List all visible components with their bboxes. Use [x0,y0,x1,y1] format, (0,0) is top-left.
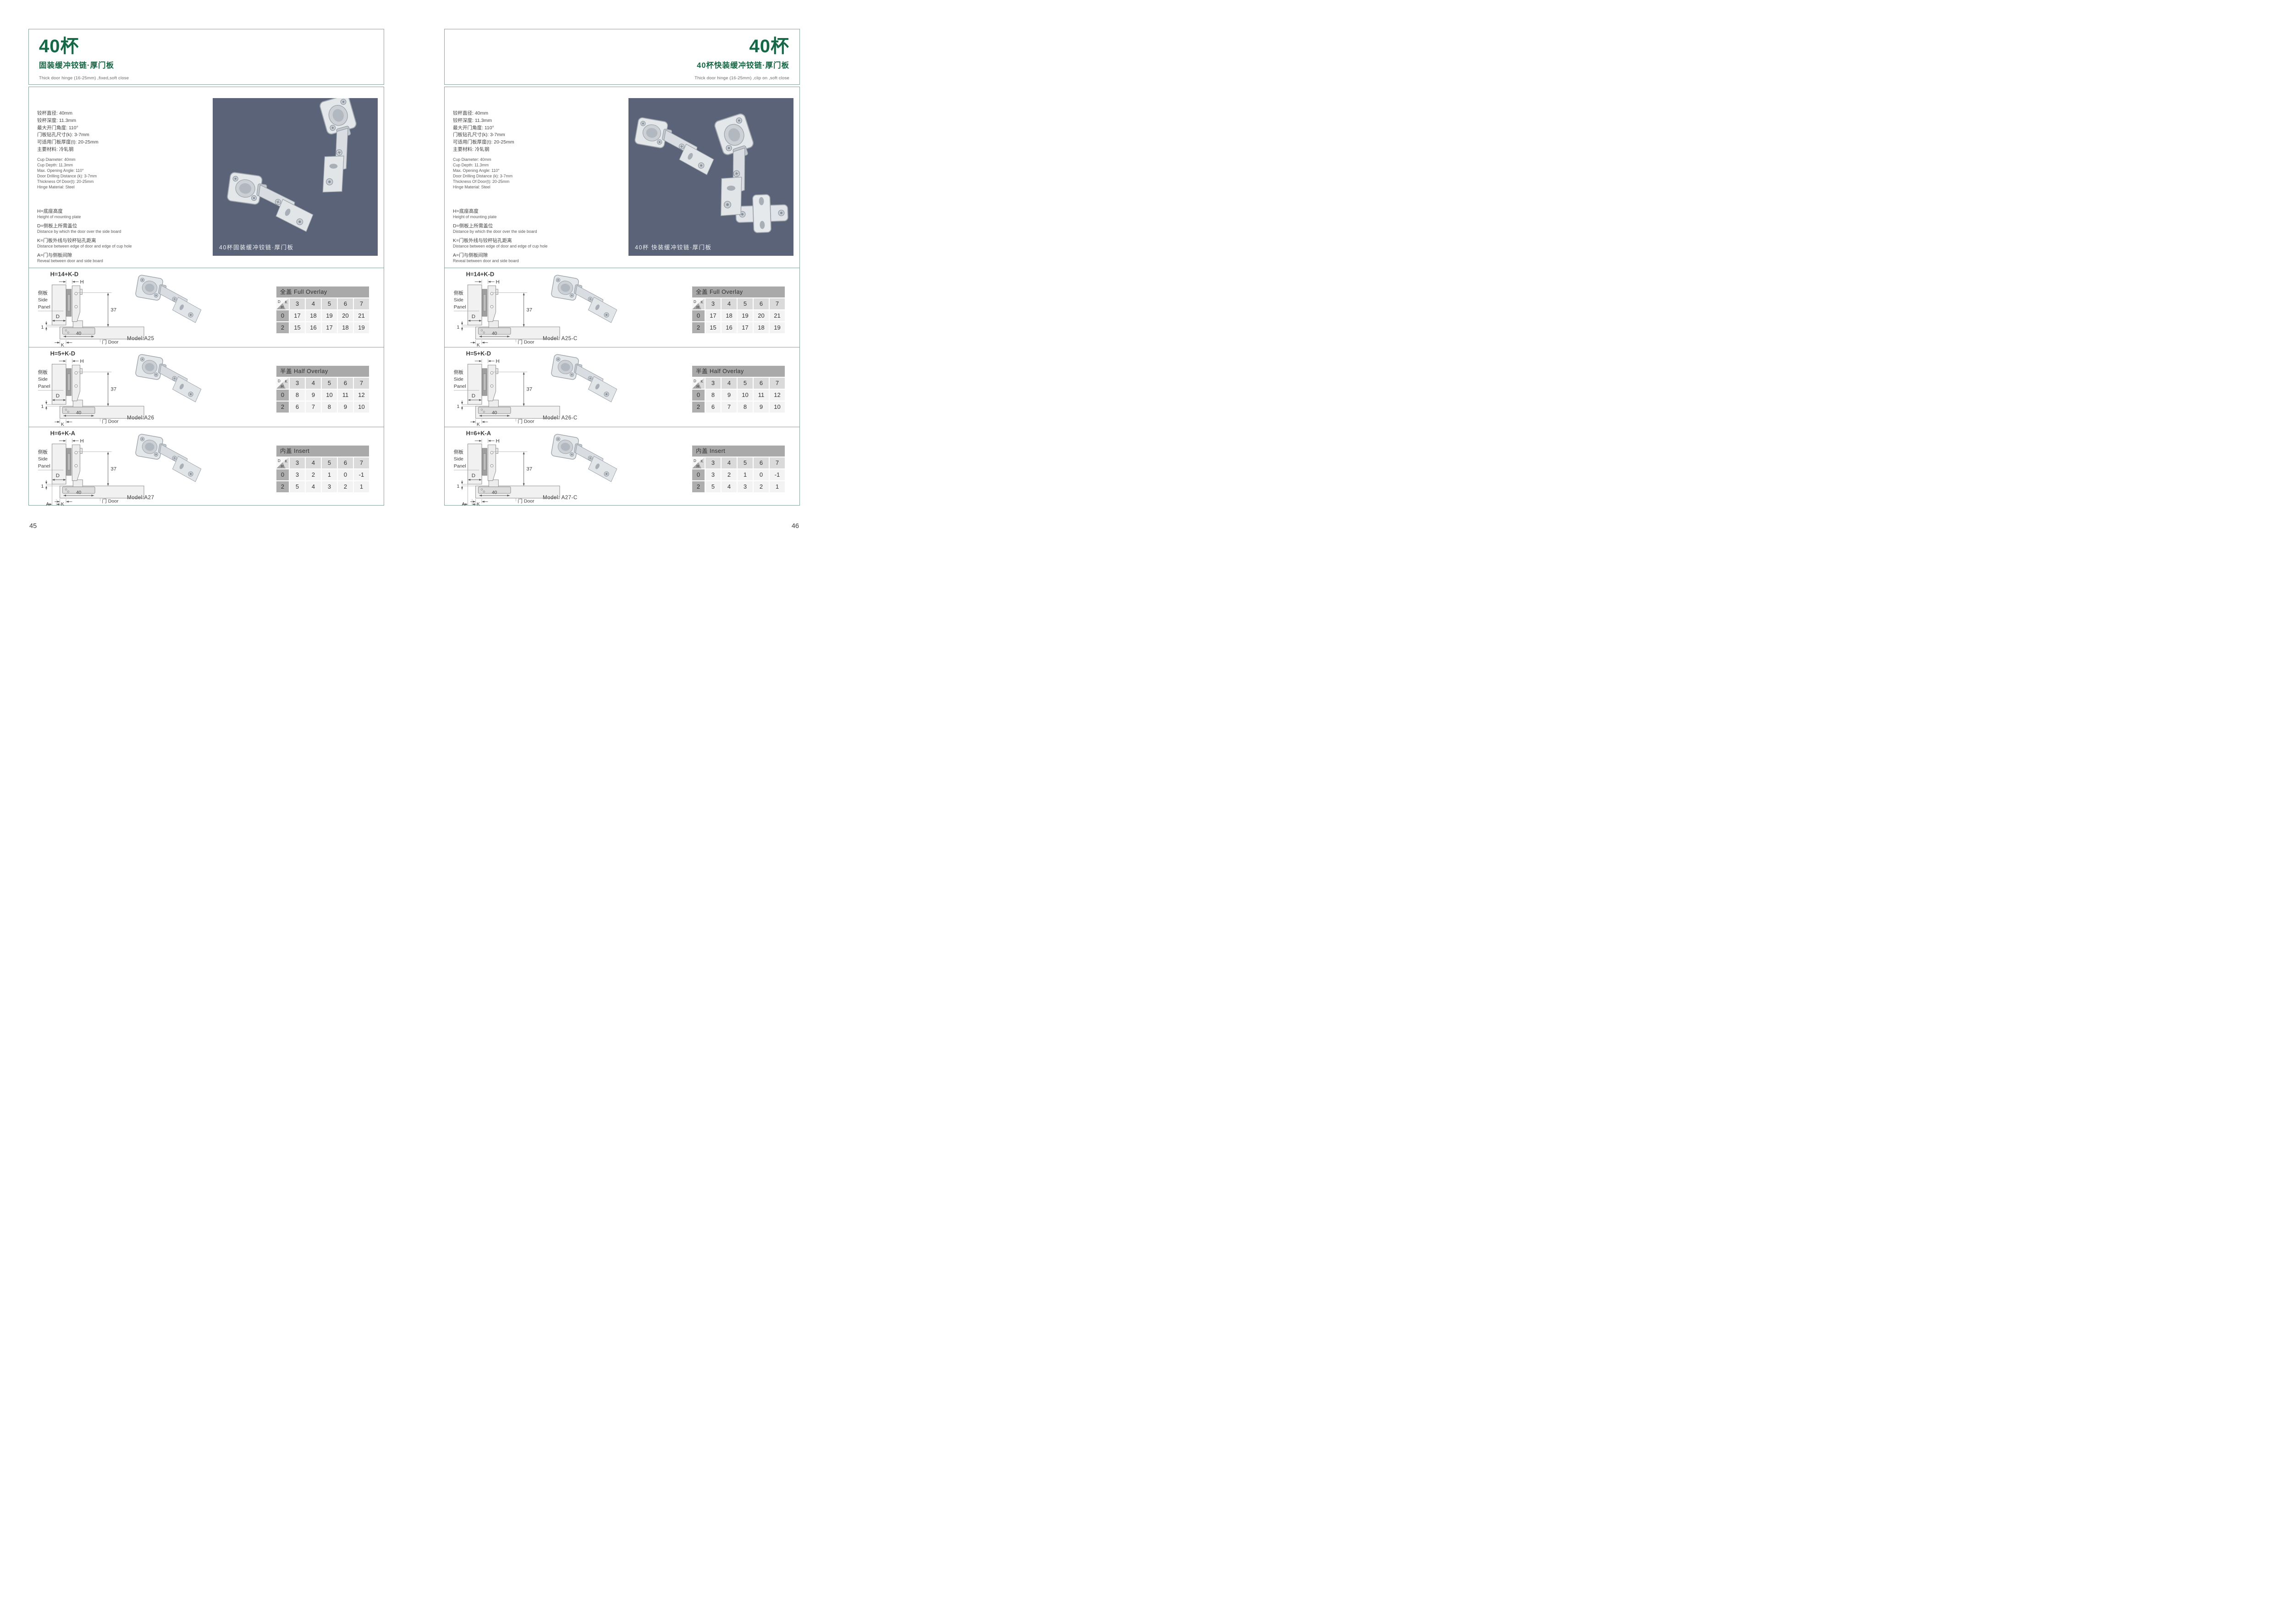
table-row-header: 2 [692,481,705,492]
table-cell: 17 [290,310,305,321]
corner-letter-h: H [281,464,284,468]
table-cell: 17 [705,310,721,321]
table-title: 内盖 Insert [692,446,785,457]
product-image [132,429,208,494]
table-row-header: 0 [276,469,289,480]
table-col-header: 5 [322,457,337,468]
table-col-header: 3 [705,298,721,309]
corner-diagonal: D K H [276,457,289,468]
corner-diagonal: D K H [692,378,705,389]
dim-label-h: H [496,359,500,364]
table-cell: 18 [754,322,769,333]
dim-label-1: 1 [41,484,44,489]
hinge-illustration [547,349,623,411]
corner-letter-h: H [697,464,700,468]
dim-label-1: 1 [457,484,460,489]
dim-label-d: D [56,393,60,399]
door-label: 门 Door [102,498,119,504]
table-col-header: 4 [722,298,737,309]
table-col-header: 7 [354,457,369,468]
product-image [547,349,624,414]
catalog-spread: 40杯 固装缓冲铰链·厚门板 Thick door hinge (16-25mm… [0,0,830,541]
page-subtitle: 固装缓冲铰链·厚门板 [39,59,374,70]
table-cell: 9 [338,402,353,413]
page-number: 45 [29,523,37,530]
table-row-header: 2 [276,322,289,333]
table-col-header: 4 [306,457,321,468]
dim-label-37: 37 [110,467,116,472]
table-cell: 21 [770,310,785,321]
dim-label-h: H [80,439,84,444]
table-cell: -1 [770,469,785,480]
table-cell: 19 [322,310,337,321]
table-col-header: 5 [322,298,337,309]
table-col-header: 6 [754,378,769,389]
dim-label-40: 40 [492,410,497,415]
installation-formula: H=14+K-D [466,270,495,277]
table-cell: 2 [722,469,737,480]
product-section: H=5+K-D H 侧板 Side Panel D 1 40 37 K 门 Do… [445,347,799,427]
table-corner-cell: D K H [692,378,705,389]
table-cell: 19 [770,322,785,333]
table-cell: 3 [322,481,337,492]
page-header: 40杯 固装缓冲铰链·厚门板 Thick door hinge (16-25mm… [28,29,384,85]
dim-label-1: 1 [41,404,44,409]
dim-label-1: 1 [457,325,460,330]
table-row-header: 2 [692,322,705,333]
dim-label-d: D [472,473,475,479]
dim-label-k: K [477,422,480,426]
corner-letter-h: H [281,305,284,309]
table-col-header: 7 [354,378,369,389]
table-cell: 2 [754,481,769,492]
table-col-header: 7 [770,298,785,309]
product-image [547,429,624,494]
corner-letter-k: K [701,459,704,463]
corner-diagonal: D K H [692,457,705,468]
product-sections: H=14+K-D H 侧板 Side Panel D 1 40 37 K 门 D… [445,87,799,505]
table-col-header: 6 [338,457,353,468]
table-cell: 9 [722,390,737,401]
table-col-header: 7 [770,457,785,468]
table-cell: 3 [738,481,753,492]
hinge-illustration [547,270,623,332]
table-cell: 4 [306,481,321,492]
dim-label-h: H [496,439,500,444]
product-image [132,349,208,414]
dim-label-d: D [56,314,60,319]
side-panel-label-en: Panel [38,463,50,469]
table-row-header: 0 [692,469,705,480]
page-number: 46 [792,523,799,530]
table-col-header: 4 [306,378,321,389]
side-panel-label-en: Panel [38,384,50,389]
dim-label-h: H [80,280,84,285]
table-cell: 16 [722,322,737,333]
table-col-header: 5 [738,457,753,468]
side-panel-label-cn: 侧板 [38,369,48,375]
table-col-header: 6 [338,298,353,309]
table-cell: 6 [290,402,305,413]
side-panel-label-cn: 侧板 [454,290,463,296]
product-section: H=14+K-D H 侧板 Side Panel D 1 40 37 K 门 D… [29,268,384,347]
table-grid: D K H 345670171819202121516171819 [276,298,369,333]
table-col-header: 7 [770,378,785,389]
table-cell: 19 [738,310,753,321]
installation-formula: H=5+K-D [50,350,75,357]
corner-letter-k: K [285,300,288,304]
product-image [132,270,208,335]
side-panel-label-en: Side [38,377,48,382]
corner-letter-d: D [278,459,281,463]
table-row-header: 2 [692,402,705,413]
dim-label-a: A [462,501,465,506]
table-cell: 8 [290,390,305,401]
table-cell: 18 [722,310,737,321]
table-row-header: 0 [692,310,705,321]
table-grid: D K H 345670171819202121516171819 [692,298,785,333]
dim-label-37: 37 [526,467,532,472]
table-cell: 15 [290,322,305,333]
table-cell: 4 [722,481,737,492]
table-corner-cell: D K H [276,378,289,389]
table-col-header: 5 [738,378,753,389]
table-cell: 1 [354,481,369,492]
table-cell: 15 [705,322,721,333]
corner-letter-h: H [281,385,284,389]
corner-letter-d: D [278,300,281,304]
table-title: 半盖 Half Overlay [692,366,785,377]
model-label: Model:A25 [127,336,154,341]
page-content: 铰杯直径: 40mm铰杯深度: 11.3mm最大开门角度: 110°门板钻孔尺寸… [28,87,384,506]
table-col-header: 7 [354,298,369,309]
installation-formula: H=14+K-D [50,270,79,277]
dim-label-d: D [472,314,475,319]
corner-letter-k: K [285,459,288,463]
overlay-table: 全盖 Full Overlay D K H 345670171819202121… [276,286,369,333]
table-cell: 7 [722,402,737,413]
page-subtitle-en: Thick door hinge (16-25mm) ,fixed,soft c… [39,76,374,81]
table-cell: 1 [770,481,785,492]
table-cell: 1 [738,469,753,480]
dim-label-k: K [61,422,64,426]
dim-label-a: A [46,501,49,506]
table-cell: 16 [306,322,321,333]
model-label: Model:A27 [127,495,154,501]
table-cell: 10 [322,390,337,401]
table-grid: D K H 345670891011122678910 [692,378,785,413]
table-cell: 10 [738,390,753,401]
table-cell: 7 [306,402,321,413]
table-cell: 8 [322,402,337,413]
model-label: Model:A26 [127,415,154,421]
table-col-header: 4 [722,378,737,389]
catalog-page-left: 40杯 固装缓冲铰链·厚门板 Thick door hinge (16-25mm… [28,29,384,506]
overlay-table: 全盖 Full Overlay D K H 345670171819202121… [692,286,785,333]
product-section: H=6+K-A H 侧板 Side Panel D 1 40 37 K 门 Do… [445,427,799,506]
table-cell: 18 [338,322,353,333]
side-panel-label-en: Panel [454,384,466,389]
table-cell: 20 [338,310,353,321]
table-corner-cell: D K H [276,457,289,468]
dim-label-d: D [56,473,60,479]
table-grid: D K H 345670891011122678910 [276,378,369,413]
dim-label-40: 40 [492,490,497,495]
page-subtitle-en: Thick door hinge (16-25mm) ,clip on ,sof… [455,76,789,81]
table-row-header: 0 [276,310,289,321]
table-cell: 12 [354,390,369,401]
overlay-table: 内盖 Insert D K H 3456703210-1254321 [692,446,785,492]
table-col-header: 3 [705,378,721,389]
dim-label-1: 1 [457,404,460,409]
table-grid: D K H 3456703210-1254321 [692,457,785,492]
table-cell: 17 [738,322,753,333]
table-cell: 10 [770,402,785,413]
table-cell: 3 [290,469,305,480]
page-subtitle: 40杯快装缓冲铰链·厚门板 [455,59,789,70]
table-cell: 11 [338,390,353,401]
table-col-header: 3 [705,457,721,468]
table-cell: 6 [705,402,721,413]
side-panel-label-en: Side [38,457,48,462]
table-col-header: 4 [306,298,321,309]
hinge-illustration [132,429,208,491]
side-panel-label-cn: 侧板 [38,290,48,296]
dim-label-1: 1 [41,325,44,330]
hinge-illustration [132,349,208,411]
door-label: 门 Door [102,339,119,345]
table-title: 半盖 Half Overlay [276,366,369,377]
table-cell: -1 [354,469,369,480]
dim-label-k: K [61,342,64,347]
table-title: 内盖 Insert [276,446,369,457]
corner-letter-h: H [697,385,700,389]
page-content: 铰杯直径: 40mm铰杯深度: 11.3mm最大开门角度: 110°门板钻孔尺寸… [444,87,800,506]
door-label: 门 Door [518,418,534,424]
side-panel-label-cn: 侧板 [38,449,48,455]
corner-letter-h: H [697,305,700,309]
table-cell: 3 [705,469,721,480]
table-grid: D K H 3456703210-1254321 [276,457,369,492]
overlay-table: 内盖 Insert D K H 3456703210-1254321 [276,446,369,492]
table-cell: 11 [754,390,769,401]
hinge-illustration [547,429,623,491]
dim-label-37: 37 [526,308,532,313]
table-cell: 21 [354,310,369,321]
side-panel-label-en: Panel [454,304,466,310]
product-sections: H=14+K-D H 侧板 Side Panel D 1 40 37 K 门 D… [29,87,384,505]
corner-letter-k: K [701,300,704,304]
dim-label-k: K [477,501,480,506]
hinge-illustration [132,270,208,332]
product-image [547,270,624,335]
installation-formula: H=5+K-D [466,350,491,357]
table-corner-cell: D K H [276,298,289,309]
table-col-header: 6 [754,457,769,468]
model-label: Model: A27-C [543,495,578,501]
table-cell: 1 [322,469,337,480]
door-label: 门 Door [518,498,534,504]
corner-letter-d: D [694,300,696,304]
dim-label-h: H [80,359,84,364]
model-label: Model: A26-C [543,415,578,421]
page-title: 40杯 [39,37,374,55]
table-col-header: 3 [290,457,305,468]
product-section: H=5+K-D H 侧板 Side Panel D 1 40 37 K 门 Do… [29,347,384,427]
table-cell: 17 [322,322,337,333]
side-panel-label-en: Side [454,457,463,462]
product-section: H=14+K-D H 侧板 Side Panel D 1 40 37 K 门 D… [445,268,799,347]
table-col-header: 5 [738,298,753,309]
page-header: 40杯 40杯快装缓冲铰链·厚门板 Thick door hinge (16-2… [444,29,800,85]
table-cell: 5 [290,481,305,492]
overlay-table: 半盖 Half Overlay D K H 345670891011122678… [276,366,369,413]
side-panel-label-en: Side [454,297,463,303]
catalog-page-right: 40杯 40杯快装缓冲铰链·厚门板 Thick door hinge (16-2… [444,29,800,506]
table-col-header: 3 [290,378,305,389]
table-cell: 9 [306,390,321,401]
table-cell: 12 [770,390,785,401]
table-cell: 18 [306,310,321,321]
table-row-header: 2 [276,481,289,492]
corner-diagonal: D K H [276,378,289,389]
dim-label-37: 37 [110,387,116,392]
side-panel-label-en: Panel [38,304,50,310]
dim-label-k: K [61,501,64,506]
side-panel-label-en: Side [38,297,48,303]
dim-label-40: 40 [76,331,82,336]
table-cell: 0 [754,469,769,480]
table-cell: 9 [754,402,769,413]
dim-label-40: 40 [492,331,497,336]
dim-label-d: D [472,393,475,399]
table-col-header: 4 [722,457,737,468]
table-col-header: 3 [290,298,305,309]
table-cell: 2 [306,469,321,480]
corner-letter-k: K [285,380,288,384]
table-row-header: 0 [692,390,705,401]
model-label: Model: A25-C [543,336,578,341]
corner-letter-k: K [701,380,704,384]
dim-label-37: 37 [110,308,116,313]
door-label: 门 Door [102,418,119,424]
side-panel-label-en: Panel [454,463,466,469]
table-cell: 2 [338,481,353,492]
corner-letter-d: D [694,379,696,383]
corner-diagonal: D K H [692,298,705,309]
table-row-header: 0 [276,390,289,401]
product-section: H=6+K-A H 侧板 Side Panel D 1 40 37 K 门 Do… [29,427,384,506]
table-corner-cell: D K H [692,457,705,468]
dim-label-k: K [477,342,480,347]
table-cell: 19 [354,322,369,333]
table-row-header: 2 [276,402,289,413]
table-col-header: 5 [322,378,337,389]
dim-label-h: H [496,280,500,285]
dim-label-37: 37 [526,387,532,392]
dim-label-40: 40 [76,490,82,495]
table-cell: 8 [738,402,753,413]
page-title: 40杯 [455,37,789,55]
table-cell: 8 [705,390,721,401]
table-title: 全盖 Full Overlay [276,286,369,297]
table-cell: 20 [754,310,769,321]
side-panel-label-cn: 侧板 [454,369,463,375]
corner-diagonal: D K H [276,298,289,309]
dim-label-40: 40 [76,410,82,415]
corner-letter-d: D [694,459,696,463]
table-cell: 0 [338,469,353,480]
side-panel-label-en: Side [454,377,463,382]
table-title: 全盖 Full Overlay [692,286,785,297]
table-cell: 5 [705,481,721,492]
table-col-header: 6 [338,378,353,389]
table-col-header: 6 [754,298,769,309]
side-panel-label-cn: 侧板 [454,449,463,455]
door-label: 门 Door [518,339,534,345]
overlay-table: 半盖 Half Overlay D K H 345670891011122678… [692,366,785,413]
table-corner-cell: D K H [692,298,705,309]
installation-formula: H=6+K-A [50,429,75,436]
table-cell: 10 [354,402,369,413]
installation-formula: H=6+K-A [466,429,491,436]
corner-letter-d: D [278,379,281,383]
